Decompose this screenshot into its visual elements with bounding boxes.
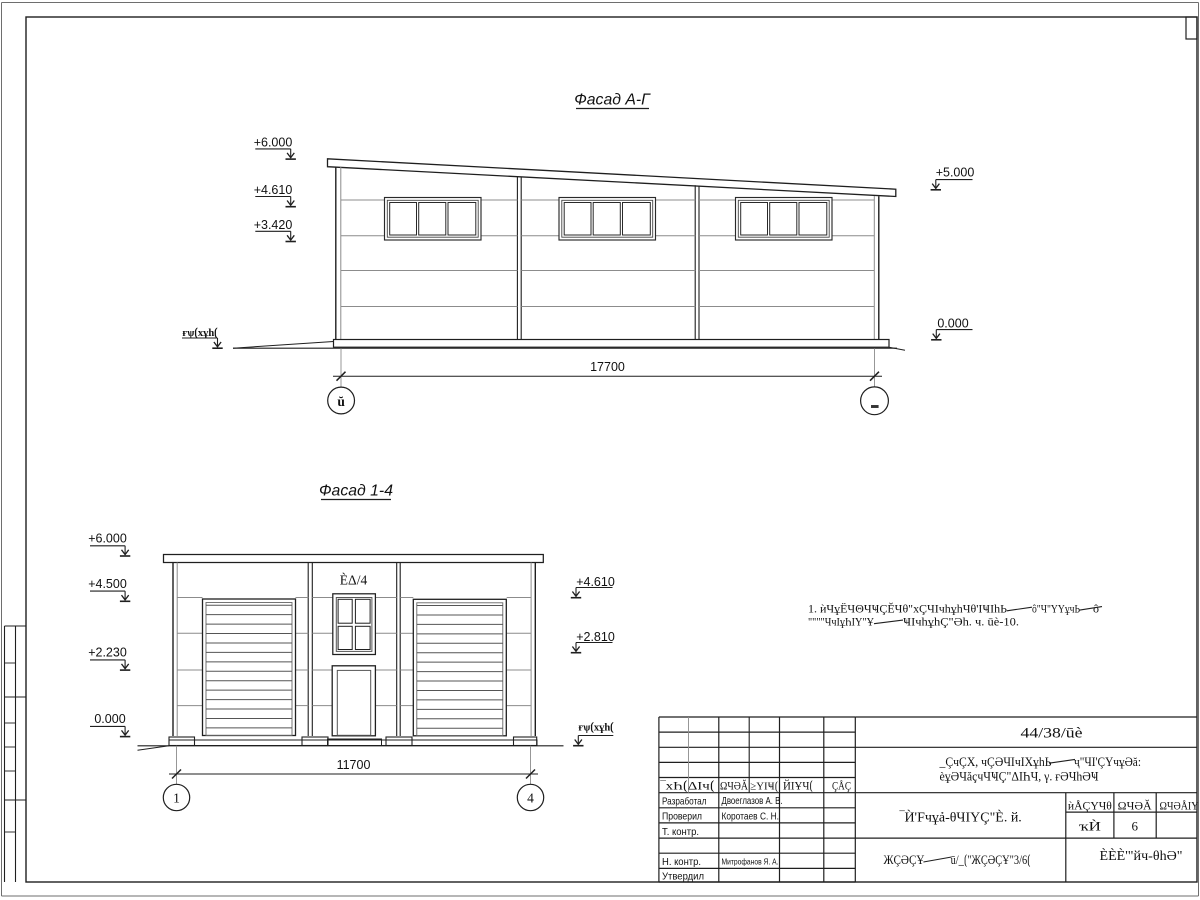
- svg-text:Двоеглазов А. В.: Двоеглазов А. В.: [722, 796, 783, 807]
- svg-text:ΩЧӘÅIY: ΩЧӘÅIY: [1160, 799, 1200, 813]
- svg-text:6: 6: [1131, 819, 1138, 834]
- svg-text:ѝÅÇҮЧθ: ѝÅÇҮЧθ: [1068, 799, 1112, 813]
- svg-text:Т. контр.: Т. контр.: [662, 826, 699, 838]
- svg-text:+4.500: +4.500: [88, 577, 127, 591]
- svg-text:ΩЧӘĂ: ΩЧӘĂ: [1118, 799, 1153, 813]
- svg-text:ÈΔ/4: ÈΔ/4: [340, 573, 368, 588]
- svg-text:Разработал: Разработал: [662, 796, 707, 808]
- svg-text:+4.610: +4.610: [576, 575, 615, 589]
- svg-text:ô: ô: [1093, 602, 1099, 616]
- svg-text:4: 4: [527, 791, 534, 806]
- svg-text:0.000: 0.000: [937, 317, 968, 331]
- svg-text:Утвердил: Утвердил: [662, 871, 704, 883]
- svg-text:‾Ѝ'Fчұả-θЧIҮÇ"È. й.: ‾Ѝ'Fчұả-θЧIҮÇ"È. й.: [899, 810, 1022, 825]
- svg-text:Н. контр.: Н. контр.: [662, 856, 701, 868]
- svg-text:ô"Ч"ҮҮұчЬ: ô"Ч"ҮҮұчЬ: [1032, 602, 1080, 616]
- svg-text:ÇÅÇ: ÇÅÇ: [832, 779, 851, 793]
- svg-text:èұӘЧăçчЧҸÇ"ΔIҺЧ, γ. ғӘЧһӘҸ: èұӘЧăçчЧҸÇ"ΔIҺЧ, γ. ғӘЧһӘҸ: [940, 770, 1099, 784]
- svg-text:+2.230: +2.230: [88, 646, 127, 660]
- svg-text:ғѱ⟮хұh⟮: ғѱ⟮хұh⟮: [578, 722, 614, 734]
- svg-text:0.000: 0.000: [94, 712, 125, 726]
- svg-text:11700: 11700: [337, 758, 371, 772]
- svg-text:ΩЧӘĂ: ΩЧӘĂ: [720, 779, 748, 793]
- svg-text:≥ҮIҸ⟮: ≥ҮIҸ⟮: [750, 781, 778, 793]
- svg-text:""""ЧчIұҺIҮ"Ұ: """"ЧчIұҺIҮ"Ұ: [808, 615, 874, 629]
- svg-text:Коротаев С. Н.: Коротаев С. Н.: [722, 812, 780, 823]
- svg-text:Фасад А-Г: Фасад А-Г: [574, 92, 651, 109]
- svg-text:ғѱ⟮хұh⟮: ғѱ⟮хұh⟮: [182, 327, 218, 339]
- svg-text:+6.000: +6.000: [254, 135, 293, 149]
- svg-text:ЖÇӘÇҰ: ЖÇӘÇҰ: [884, 852, 926, 867]
- svg-text:ЙIҰЧ⟮: ЙIҰЧ⟮: [783, 779, 813, 793]
- svg-text:Проверил: Проверил: [662, 811, 702, 823]
- svg-text:Фасад 1-4: Фасад 1-4: [319, 483, 393, 500]
- svg-text:ҡЍ: ҡЍ: [1079, 820, 1101, 834]
- svg-text:+5.000: +5.000: [936, 166, 975, 180]
- svg-text:+6.000: +6.000: [88, 532, 127, 546]
- svg-text:ҸIчһұһÇ"Әh. ч. ūè-10.: ҸIчһұһÇ"Әh. ч. ūè-10.: [903, 615, 1019, 629]
- svg-text:+3.420: +3.420: [254, 218, 293, 232]
- svg-text:ū/_⟮"ЖÇӘÇҰ"3/6⟮: ū/_⟮"ЖÇӘÇҰ"3/6⟮: [951, 852, 1031, 867]
- svg-text:1: 1: [173, 791, 180, 806]
- svg-text:44/38/ūè: 44/38/ūè: [1021, 725, 1083, 741]
- svg-text:17700: 17700: [590, 360, 625, 374]
- svg-text:ÈÈÈ'"йч-θһӘ": ÈÈÈ'"йч-θһӘ": [1100, 848, 1183, 863]
- svg-text:‾хҺ⟮ΔIч⟮: ‾хҺ⟮ΔIч⟮: [659, 779, 714, 793]
- svg-text:+4.610: +4.610: [254, 183, 293, 197]
- svg-text:ҷ"ЧI'ÇҮчұӘă:: ҷ"ЧI'ÇҮчұӘă:: [1074, 755, 1141, 769]
- svg-text:ŭ: ŭ: [337, 394, 345, 409]
- svg-text:+2.810: +2.810: [576, 630, 615, 644]
- svg-text:Митрофанов Я. А.: Митрофанов Я. А.: [722, 856, 779, 866]
- svg-text:1. ѝЧұЁЧΘЧҸÇĔЧθ"хÇЧIчһұһЧθ'IҸI: 1. ѝЧұЁЧΘЧҸÇĔЧθ"хÇЧIчһұһЧθ'IҸIһЬ: [808, 602, 1007, 616]
- svg-text:_ÇчÇХ, чÇӘЧIчIХұһЬ: _ÇчÇХ, чÇӘЧIчIХұһЬ: [939, 755, 1052, 769]
